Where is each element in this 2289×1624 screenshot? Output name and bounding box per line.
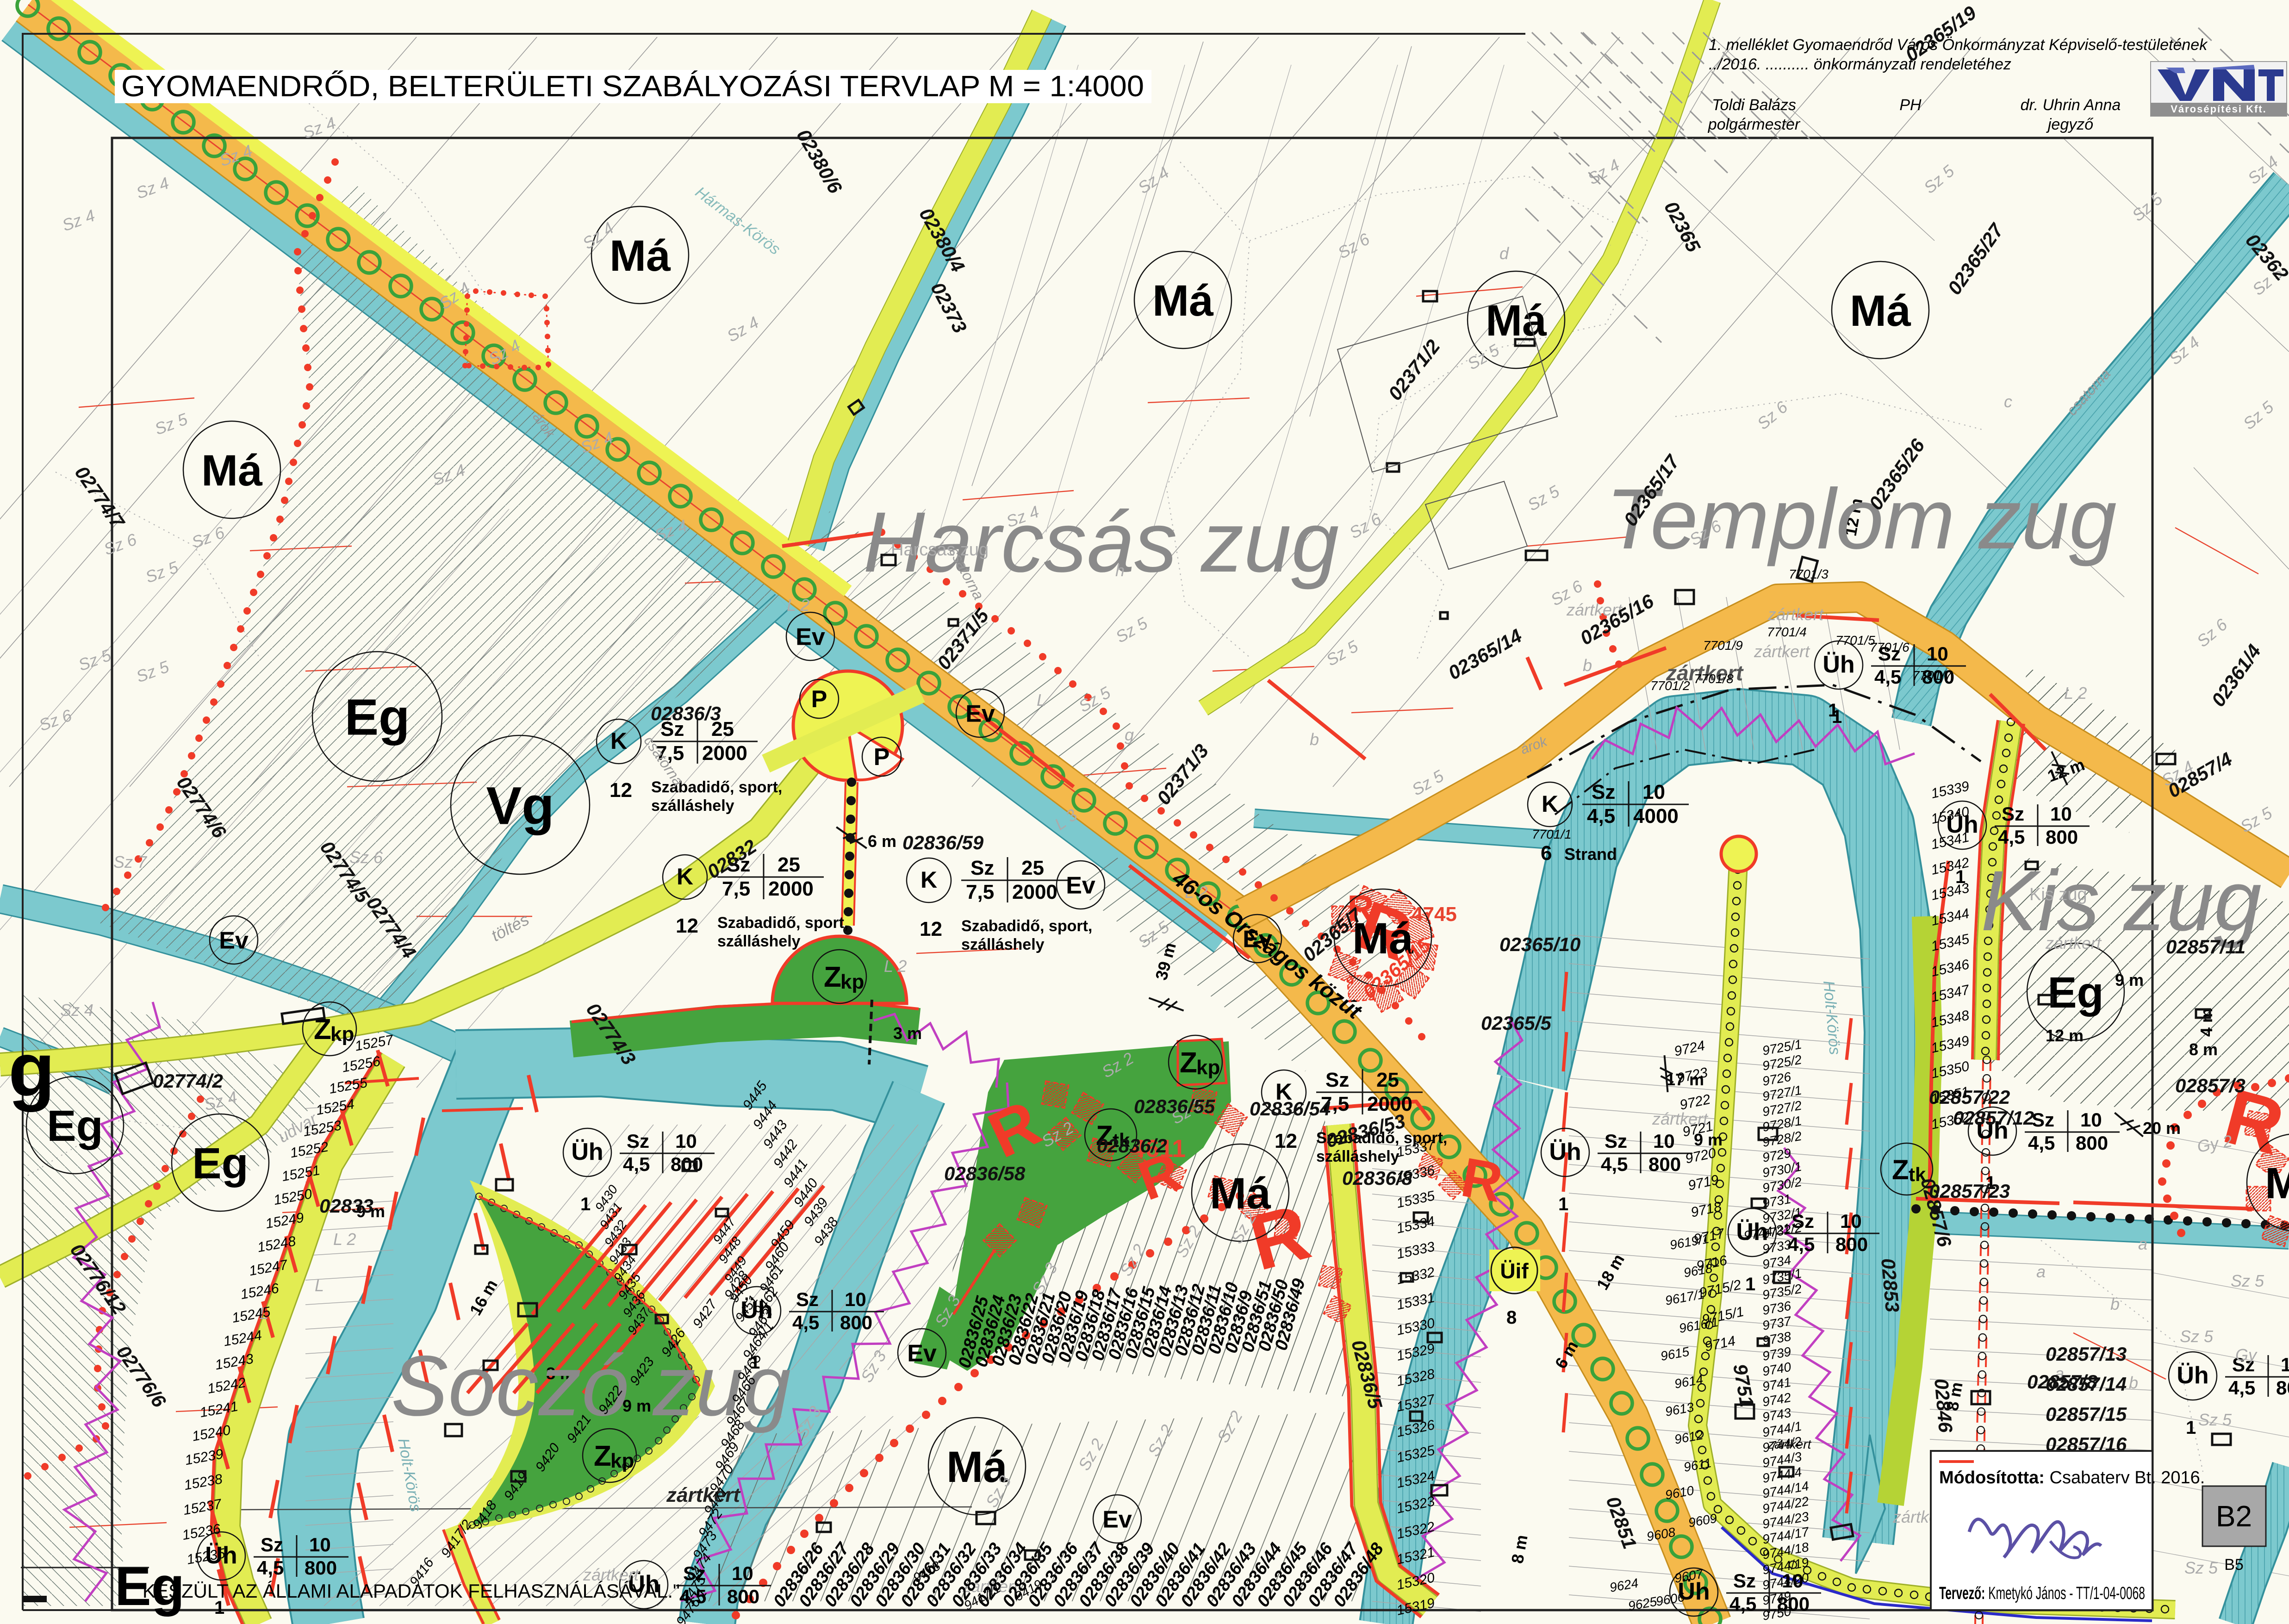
svg-text:Eg: Eg: [47, 1101, 103, 1151]
svg-text:2000: 2000: [1012, 881, 1057, 903]
svg-text:800: 800: [2276, 1377, 2289, 1399]
svg-text:2000: 2000: [1367, 1093, 1412, 1115]
svg-text:Vg: Vg: [486, 776, 554, 835]
svg-text:Sz: Sz: [1325, 1069, 1349, 1091]
svg-text:P: P: [874, 744, 890, 771]
svg-text:Z: Z: [824, 961, 841, 993]
svg-text:dr. Uhrin Anna: dr. Uhrin Anna: [2021, 96, 2121, 114]
svg-text:Sz 7: Sz 7: [113, 852, 148, 871]
svg-text:Sz 5: Sz 5: [2180, 1327, 2214, 1346]
svg-text:7701/9: 7701/9: [1703, 638, 1743, 653]
svg-text:10: 10: [2281, 1354, 2289, 1375]
svg-text:800: 800: [2076, 1132, 2108, 1154]
svg-text:Ev: Ev: [1102, 1506, 1132, 1533]
svg-text:L: L: [315, 1276, 324, 1295]
svg-text:Kis zug: Kis zug: [1981, 853, 2262, 949]
svg-text:b: b: [2110, 1294, 2120, 1313]
svg-text:02365/5: 02365/5: [1481, 1012, 1551, 1034]
svg-text:kp: kp: [330, 1023, 354, 1045]
svg-text:Sz: Sz: [1605, 1130, 1627, 1152]
svg-text:12: 12: [1275, 1130, 1297, 1152]
svg-text:Sz 4: Sz 4: [60, 1001, 93, 1020]
svg-text:25: 25: [1376, 1069, 1399, 1091]
svg-text:Üh: Üh: [571, 1139, 603, 1165]
svg-text:B2: B2: [2216, 1500, 2252, 1533]
svg-text:8 m: 8 m: [2189, 1040, 2218, 1059]
svg-text:d: d: [1499, 244, 1509, 263]
svg-text:Strand: Strand: [1564, 845, 1617, 864]
svg-text:szálláshely: szálláshely: [961, 936, 1045, 953]
svg-text:7701/2: 7701/2: [1650, 678, 1690, 693]
svg-text:Má: Má: [1152, 276, 1214, 325]
svg-text:zártkert: zártkert: [666, 1484, 741, 1506]
svg-text:h: h: [1115, 561, 1125, 580]
svg-text:Z: Z: [1892, 1154, 1909, 1185]
svg-text:02857/11: 02857/11: [2166, 936, 2245, 958]
svg-text:02836/3: 02836/3: [651, 703, 721, 724]
svg-text:L 2: L 2: [884, 957, 907, 976]
svg-text:Sz: Sz: [2002, 803, 2024, 825]
svg-text:4745: 4745: [1412, 903, 1457, 926]
svg-text:Ev: Ev: [1066, 872, 1095, 899]
svg-text:Üh: Üh: [2177, 1362, 2208, 1389]
svg-text:Módosította: Csabaterv Bt. 201: Módosította: Csabaterv Bt. 2016.: [1939, 1468, 2205, 1487]
svg-text:1: 1: [1828, 700, 1838, 721]
svg-text:Ev: Ev: [907, 1340, 937, 1367]
svg-text:10: 10: [1653, 1130, 1675, 1152]
svg-text:Má: Má: [1210, 1169, 1271, 1218]
svg-text:7,5: 7,5: [722, 877, 750, 900]
svg-text:02836/58: 02836/58: [944, 1163, 1026, 1184]
svg-text:02857/13: 02857/13: [2046, 1343, 2127, 1365]
svg-text:4,5: 4,5: [2028, 1132, 2055, 1154]
svg-text:02836/59: 02836/59: [902, 832, 984, 853]
svg-text:g: g: [1125, 725, 1134, 744]
svg-text:Má: Má: [610, 231, 671, 280]
svg-text:Üh: Üh: [1549, 1139, 1581, 1165]
svg-text:a: a: [2138, 1234, 2147, 1253]
svg-text:800: 800: [1835, 1233, 1868, 1255]
svg-text:4000: 4000: [1633, 805, 1679, 828]
svg-text:L 2: L 2: [333, 1230, 356, 1249]
svg-text:25: 25: [778, 853, 800, 876]
svg-text:Eg: Eg: [192, 1139, 248, 1188]
svg-text:Eg: Eg: [2047, 968, 2103, 1017]
svg-text:6: 6: [1541, 842, 1552, 865]
svg-text:1: 1: [2186, 1418, 2196, 1438]
svg-text:10: 10: [845, 1288, 866, 1310]
svg-text:02774/2: 02774/2: [153, 1070, 223, 1092]
svg-text:10: 10: [309, 1534, 331, 1556]
svg-text:K: K: [1542, 791, 1558, 817]
svg-text:Sz 5: Sz 5: [2198, 1410, 2232, 1429]
svg-text:6 m: 6 m: [868, 832, 896, 851]
svg-text:L: L: [1037, 691, 1046, 709]
svg-text:7701/1: 7701/1: [1532, 827, 1572, 841]
svg-text:10: 10: [675, 1130, 697, 1152]
svg-text:Sz: Sz: [627, 1130, 649, 1152]
svg-text:10: 10: [732, 1562, 753, 1584]
svg-text:10: 10: [2080, 1109, 2102, 1131]
svg-text:Üif: Üif: [1500, 1259, 1529, 1283]
svg-text:Városépítési Kft.: Városépítési Kft.: [2171, 103, 2267, 115]
svg-text:20 m: 20 m: [2143, 1119, 2181, 1138]
svg-text:7701/6: 7701/6: [1870, 640, 1910, 654]
svg-text:10: 10: [1642, 781, 1665, 803]
svg-text:800: 800: [727, 1586, 759, 1607]
svg-text:zártkert: zártkert: [1754, 642, 1810, 661]
svg-text:12: 12: [920, 918, 942, 940]
svg-text:../2016. .......... önkormányz: ../2016. .......... önkormányzati rendel…: [1709, 56, 2011, 73]
svg-text:02857/3: 02857/3: [2175, 1075, 2245, 1096]
svg-text:02836/55: 02836/55: [1134, 1095, 1215, 1117]
svg-text:szálláshely: szálláshely: [651, 797, 734, 815]
svg-text:02857/14: 02857/14: [2046, 1373, 2127, 1395]
svg-text:Má: Má: [1486, 296, 1547, 345]
svg-text:K: K: [921, 867, 937, 893]
svg-text:4,5: 4,5: [1874, 666, 1901, 688]
svg-text:02836/2: 02836/2: [1097, 1135, 1167, 1157]
svg-text:polgármester: polgármester: [1708, 116, 1801, 133]
svg-text:Üh: Üh: [1822, 651, 1854, 678]
svg-text:2000: 2000: [702, 742, 747, 765]
svg-text:25: 25: [1021, 857, 1044, 879]
svg-text:jegyző: jegyző: [2046, 116, 2094, 133]
svg-text:7,5: 7,5: [966, 881, 994, 903]
svg-text:b: b: [2129, 1373, 2138, 1392]
svg-text:Z: Z: [594, 1440, 611, 1472]
svg-text:b: b: [1583, 656, 1592, 675]
svg-text:4,5: 4,5: [1601, 1153, 1628, 1175]
svg-text:2000: 2000: [768, 877, 814, 900]
svg-text:szálláshely: szálláshely: [717, 933, 801, 950]
svg-text:10: 10: [1840, 1210, 1862, 1232]
svg-text:Sz 5: Sz 5: [2184, 1558, 2218, 1577]
svg-text:kp: kp: [610, 1450, 634, 1472]
svg-text:Sz: Sz: [1733, 1570, 1756, 1592]
svg-text:"KÉSZÜLT AZ ÁLLAMI ALAPADATOK: "KÉSZÜLT AZ ÁLLAMI ALAPADATOK FELHASZNÁL…: [136, 1580, 680, 1602]
svg-text:4,5: 4,5: [1729, 1593, 1756, 1615]
svg-text:800: 800: [305, 1557, 337, 1579]
svg-text:7701/8: 7701/8: [1694, 672, 1734, 686]
svg-text:kp: kp: [840, 971, 864, 993]
svg-text:4,5: 4,5: [623, 1153, 650, 1175]
svg-text:02365/10: 02365/10: [1499, 933, 1580, 955]
svg-text:7701/4: 7701/4: [1767, 625, 1807, 639]
svg-text:c: c: [2004, 392, 2012, 411]
svg-text:b: b: [1310, 730, 1319, 749]
svg-text:K: K: [677, 864, 693, 890]
svg-text:L 2: L 2: [2064, 684, 2087, 703]
svg-text:4,5: 4,5: [1788, 1233, 1815, 1255]
svg-text:Ev: Ev: [219, 927, 249, 954]
svg-text:zártkert: zártkert: [2045, 933, 2102, 952]
svg-text:800: 800: [840, 1312, 872, 1333]
svg-text:Sz: Sz: [2032, 1109, 2054, 1131]
svg-text:1: 1: [1745, 1274, 1755, 1294]
svg-text:Szabadidő, sport,: Szabadidő, sport,: [717, 914, 848, 932]
svg-text:800: 800: [1648, 1153, 1681, 1175]
svg-text:a: a: [2036, 1262, 2046, 1281]
svg-text:4,5: 4,5: [1587, 805, 1615, 828]
svg-text:Sz: Sz: [1592, 781, 1615, 803]
svg-text:Harcsás zug: Harcsás zug: [891, 540, 989, 560]
svg-text:B5: B5: [2224, 1556, 2244, 1574]
svg-text:GYOMAENDRŐD, BELTERÜLETI SZABÁ: GYOMAENDRŐD, BELTERÜLETI SZABÁLYOZÁSI TE…: [121, 69, 1144, 103]
svg-text:Sz 6: Sz 6: [349, 848, 383, 867]
svg-text:Gy: Gy: [2235, 1345, 2258, 1364]
svg-text:Sz: Sz: [970, 857, 994, 879]
svg-text:800: 800: [2046, 826, 2078, 848]
svg-text:Ev: Ev: [796, 624, 825, 651]
svg-text:L 2: L 2: [787, 596, 809, 615]
svg-text:02857/15: 02857/15: [2046, 1403, 2127, 1425]
svg-text:9 m: 9 m: [2115, 971, 2144, 989]
svg-text:02857/23: 02857/23: [1929, 1180, 2010, 1202]
svg-text:7701/7: 7701/7: [1912, 668, 1953, 683]
svg-text:Sz: Sz: [796, 1288, 819, 1310]
svg-text:Z: Z: [1180, 1047, 1197, 1079]
svg-text:12: 12: [676, 915, 698, 937]
svg-text:K: K: [610, 728, 627, 754]
svg-text:10: 10: [2050, 803, 2072, 825]
svg-text:1: 1: [1558, 1194, 1568, 1214]
svg-text:7701/3: 7701/3: [1789, 567, 1829, 581]
svg-text:4,5: 4,5: [257, 1557, 284, 1579]
svg-text:4,5: 4,5: [2228, 1377, 2255, 1399]
svg-text:Eg: Eg: [345, 689, 410, 746]
svg-text:12: 12: [610, 779, 632, 802]
svg-text:12 m: 12 m: [2046, 1026, 2084, 1045]
svg-text:g: g: [8, 1027, 55, 1112]
svg-text:Sz 5: Sz 5: [2231, 1271, 2264, 1290]
svg-text:Ev: Ev: [965, 701, 995, 728]
svg-text:kp: kp: [1196, 1056, 1220, 1079]
svg-text:02836/54: 02836/54: [1250, 1098, 1331, 1120]
svg-text:8: 8: [1506, 1307, 1517, 1328]
svg-text:Kis zug: Kis zug: [2029, 885, 2087, 904]
svg-text:1. melléklet Gyomaendrőd Város: 1. melléklet Gyomaendrőd Város Önkormány…: [1709, 36, 2208, 54]
svg-text:Sz: Sz: [261, 1534, 283, 1556]
svg-text:Templom zug: Templom zug: [1606, 472, 2117, 567]
svg-text:Má: Má: [201, 446, 263, 495]
svg-text:10: 10: [1927, 643, 1948, 665]
svg-text:4,5: 4,5: [792, 1312, 819, 1333]
svg-text:Tervező: Kmetykó János - TT/1-: Tervező: Kmetykó János - TT/1-04-0068: [1939, 1584, 2145, 1603]
svg-text:Má: Má: [1850, 286, 1911, 336]
svg-text:Má: Má: [2265, 1159, 2289, 1208]
svg-text:Szabadidő, sport,: Szabadidő, sport,: [961, 917, 1092, 935]
svg-text:zártkert: zártkert: [1767, 605, 1824, 624]
svg-text:02833: 02833: [319, 1195, 373, 1217]
svg-text:PH: PH: [1899, 96, 1922, 114]
svg-text:4 m: 4 m: [2197, 1008, 2216, 1037]
svg-text:zártkert: zártkert: [1767, 1437, 1812, 1451]
svg-text:4,5: 4,5: [1998, 826, 2025, 848]
svg-text:P: P: [811, 686, 827, 713]
svg-text:3 m: 3 m: [893, 1024, 922, 1043]
svg-text:1: 1: [580, 1194, 591, 1214]
svg-text:Toldi Balázs: Toldi Balázs: [1712, 96, 1796, 114]
